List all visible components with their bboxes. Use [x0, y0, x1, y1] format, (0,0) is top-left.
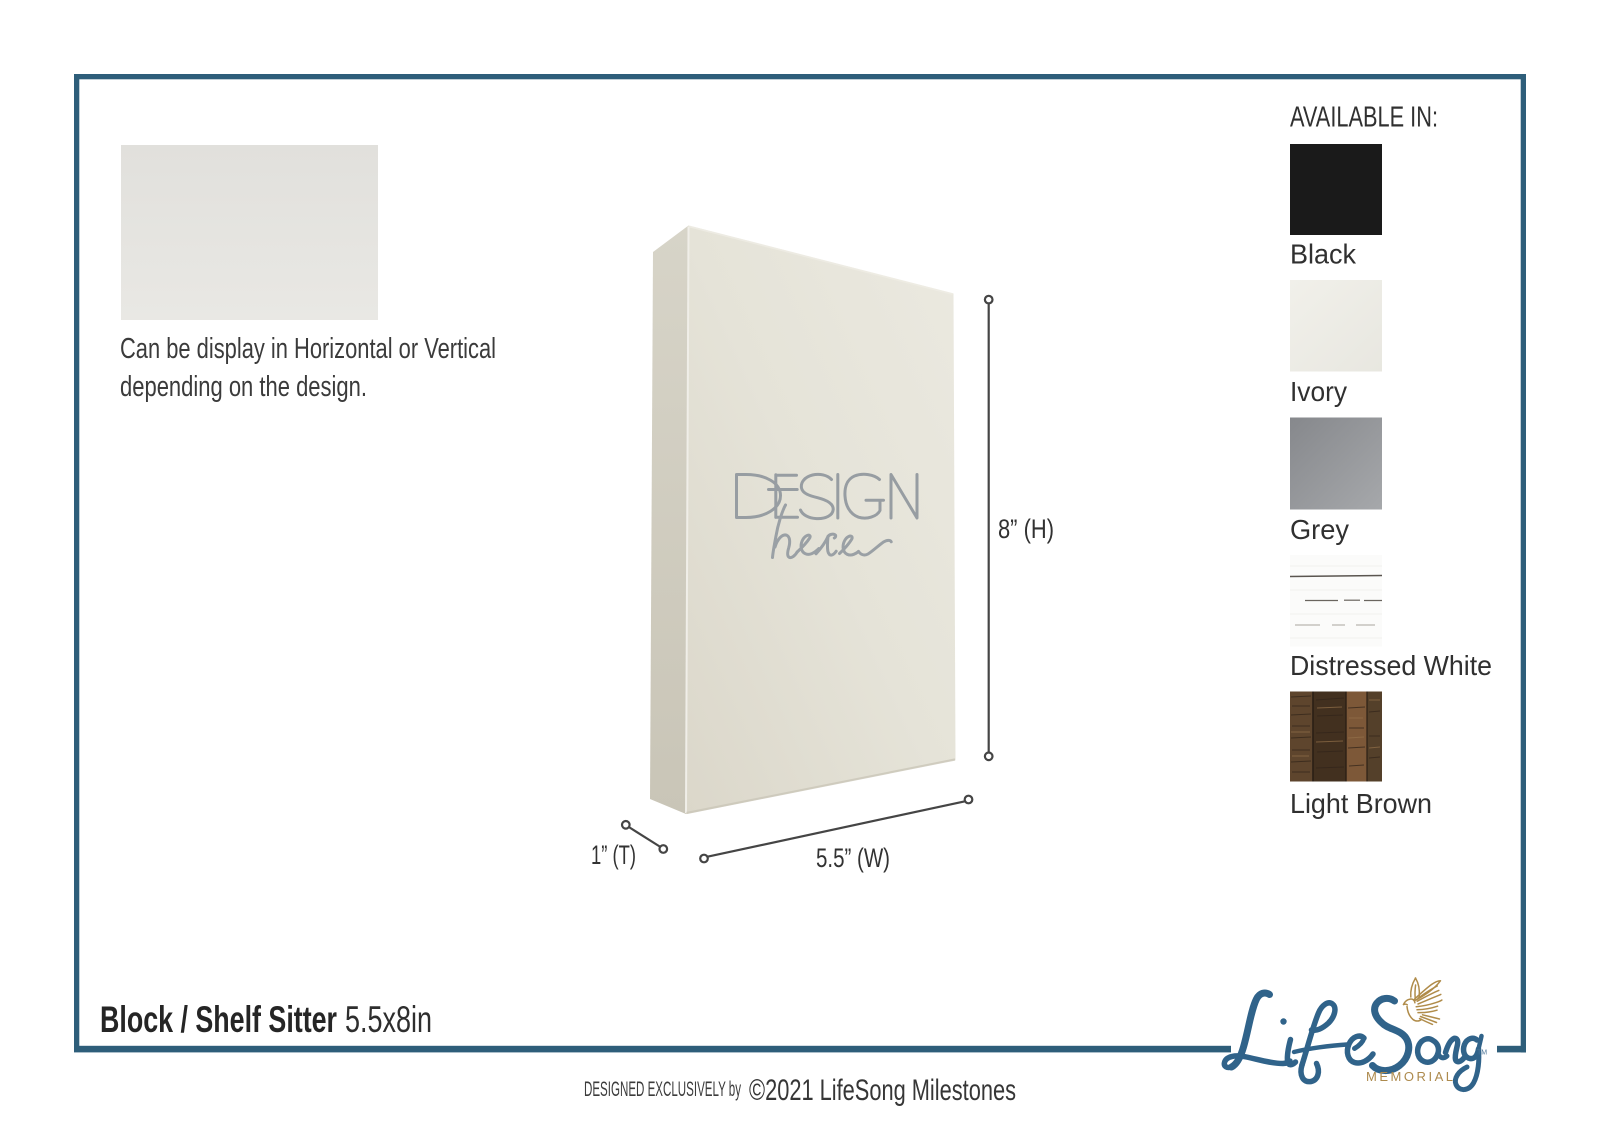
svg-text:5.5” (W): 5.5” (W): [816, 843, 890, 873]
svg-text:AVAILABLE IN:: AVAILABLE IN:: [1290, 102, 1438, 134]
svg-text:Distressed White: Distressed White: [1290, 650, 1492, 681]
svg-text:1” (T): 1” (T): [591, 840, 636, 870]
svg-text:MEMORIAL: MEMORIAL: [1366, 1069, 1453, 1084]
svg-text:Can be display in Horizontal o: Can be display in Horizontal or Vertical: [120, 333, 496, 365]
svg-text:Ivory: Ivory: [1290, 376, 1347, 407]
svg-text:depending on the design.: depending on the design.: [120, 371, 367, 403]
svg-text:DESIGNED EXCLUSIVELY by: DESIGNED EXCLUSIVELY by: [584, 1078, 741, 1101]
svg-text:Black: Black: [1290, 239, 1357, 270]
svg-text:Block / Shelf Sitter: Block / Shelf Sitter: [100, 999, 337, 1040]
svg-text:5.5x8in: 5.5x8in: [345, 999, 432, 1040]
svg-text:©2021 LifeSong Milestones: ©2021 LifeSong Milestones: [749, 1074, 1016, 1107]
svg-text:8” (H): 8” (H): [998, 514, 1054, 544]
svg-text:TM: TM: [1477, 1050, 1487, 1057]
svg-text:Grey: Grey: [1290, 514, 1349, 545]
svg-text:Light Brown: Light Brown: [1290, 788, 1432, 819]
